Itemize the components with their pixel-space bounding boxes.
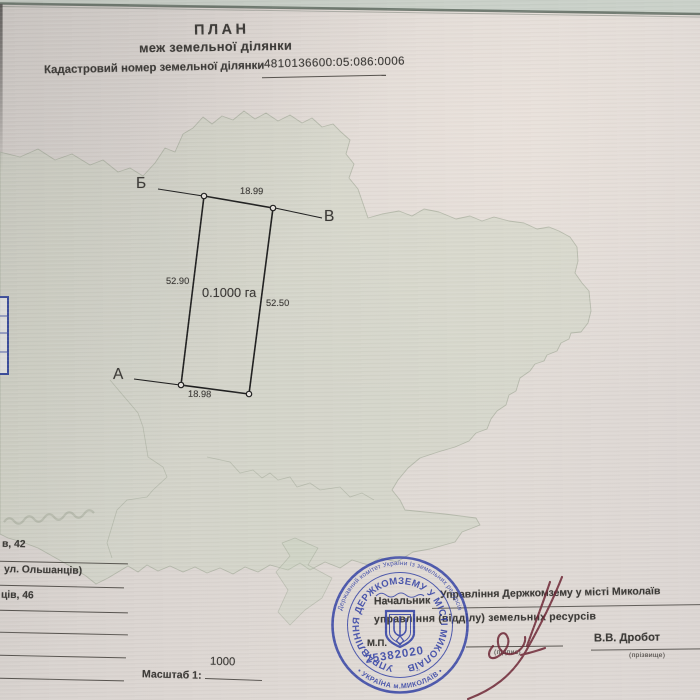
signature-caption: (підпис) <box>494 649 521 656</box>
page-left-edge <box>0 4 3 174</box>
page-subtitle: меж земельної ділянки <box>139 38 292 56</box>
official-round-stamp: Державний комітет України Із земельних р… <box>330 555 470 695</box>
scale-label: Масштаб 1: <box>142 668 202 682</box>
address-fragment-1: в, 42 <box>2 539 26 550</box>
page-top-edge <box>0 0 700 17</box>
map-watermark <box>0 111 591 625</box>
plot-side-left-dimension: 52.90 <box>166 276 189 286</box>
address-fragment-2: ул. Ольшанців) <box>4 564 82 577</box>
plot-side-bottom-dimension: 18.98 <box>188 389 212 400</box>
scanned-land-plan-document: ПЛАН меж земельної ділянки Кадастровий н… <box>0 0 700 700</box>
plot-side-right-dimension: 52.50 <box>266 298 289 308</box>
plot-corner-a-label: А <box>113 366 123 384</box>
stamp-trident-emblem <box>386 611 414 647</box>
svg-text:• УКРАЇНА м.МИКОЛАЇВ •: • УКРАЇНА м.МИКОЛАЇВ • <box>356 668 445 691</box>
plot-area-label: 0.1000 га <box>202 285 256 300</box>
scale-value: 1000 <box>210 656 236 669</box>
stamp-decorative-wave <box>376 593 424 597</box>
approver-name: В.В. Дробот <box>594 632 660 645</box>
plot-side-top-dimension: 18.99 <box>240 186 264 197</box>
plot-corner-v-label: В <box>324 208 334 226</box>
address-fragment-3: ців, 46 <box>1 590 34 602</box>
name-caption: (прізвище) <box>629 652 665 659</box>
stamp-outer-ring-bottom-text: • УКРАЇНА м.МИКОЛАЇВ • <box>356 668 445 691</box>
page-title: ПЛАН <box>194 22 250 39</box>
left-edge-blue-box <box>0 297 8 374</box>
plot-corner-b-label: Б <box>136 175 146 193</box>
